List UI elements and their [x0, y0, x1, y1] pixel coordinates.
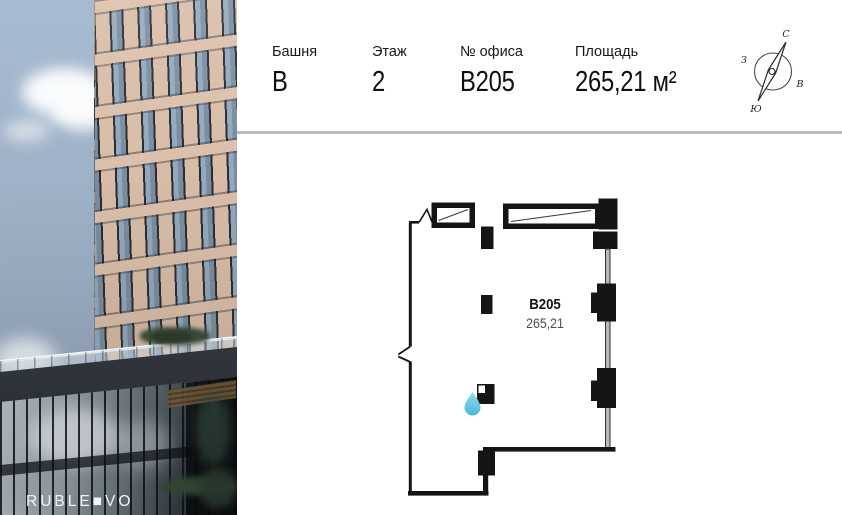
floor-plan: B205 265,21: [392, 192, 664, 514]
podium-building: [0, 0, 237, 515]
glazed-wall-right: [606, 249, 611, 448]
column-right-lower: [591, 368, 616, 408]
office-number-label: № офиса: [460, 44, 527, 60]
plan-wall-step-horizontal: [483, 447, 616, 452]
column-step-corner: [478, 451, 495, 476]
compass-south-label: Ю: [749, 104, 762, 115]
column-right-upper: [591, 284, 616, 322]
plan-wall-bottom: [408, 491, 489, 496]
compass-west-label: З: [741, 55, 747, 66]
unit-number-label: B205: [529, 295, 561, 312]
corner-pier: [599, 199, 618, 230]
wall-break-mark: [398, 347, 410, 363]
header-field-area: Площадь 265,21 м²: [575, 44, 699, 99]
page: RUBLE■VO Башня B Этаж 2 № офиса B205 Пло…: [0, 0, 842, 515]
header-field-tower: Башня B: [272, 44, 317, 99]
tower-value: B: [272, 66, 288, 99]
compass-east-label: В: [796, 79, 804, 90]
compass-rose: С Ю З В: [730, 26, 810, 118]
header-divider: [237, 131, 842, 134]
door-swing: [419, 210, 432, 223]
greenery: [196, 396, 230, 464]
roof-greenery: [152, 331, 192, 343]
area-value: 265,21 м²: [575, 66, 676, 99]
compass-north-label: С: [782, 29, 790, 40]
floor-label: Этаж: [372, 44, 407, 60]
building-photo: RUBLE■VO: [0, 0, 237, 515]
office-number-value: B205: [460, 66, 515, 99]
header-field-office-number: № офиса B205: [460, 44, 527, 99]
brand-logo: RUBLE■VO: [26, 493, 133, 511]
column-interior-wet-zone: [477, 384, 495, 404]
header-field-floor: Этаж 2: [372, 44, 407, 99]
tower-label: Башня: [272, 44, 317, 60]
column-interior-top: [481, 227, 494, 250]
unit-area-label: 265,21: [526, 315, 564, 331]
window-1: [432, 203, 476, 229]
area-label: Площадь: [575, 44, 699, 60]
greenery: [200, 468, 236, 508]
window-2: [503, 204, 601, 230]
column-interior-middle: [481, 295, 493, 314]
corner-pier: [593, 232, 618, 250]
floor-value: 2: [372, 66, 385, 99]
